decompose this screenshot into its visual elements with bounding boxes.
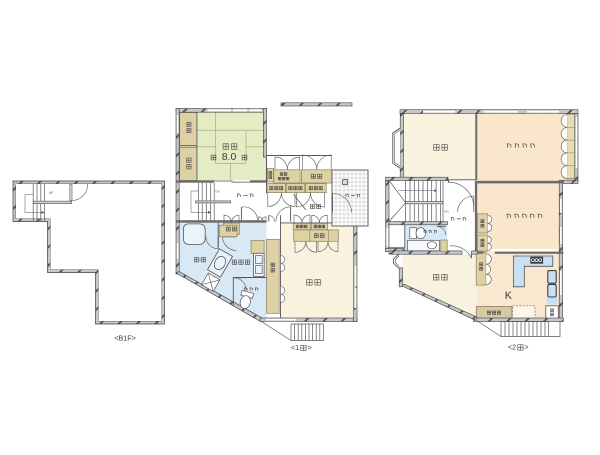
svg-text:K: K bbox=[505, 290, 513, 302]
svg-text:<1: <1 bbox=[291, 343, 299, 352]
svg-text:DN: DN bbox=[215, 189, 219, 193]
svg-text:>: > bbox=[307, 343, 311, 352]
svg-text:DN: DN bbox=[444, 209, 448, 213]
svg-text:UP: UP bbox=[49, 191, 53, 195]
svg-text:<2: <2 bbox=[508, 342, 516, 351]
svg-text:<B1F>: <B1F> bbox=[114, 333, 136, 342]
svg-text:8.0: 8.0 bbox=[222, 151, 237, 163]
svg-text:>: > bbox=[524, 342, 528, 351]
